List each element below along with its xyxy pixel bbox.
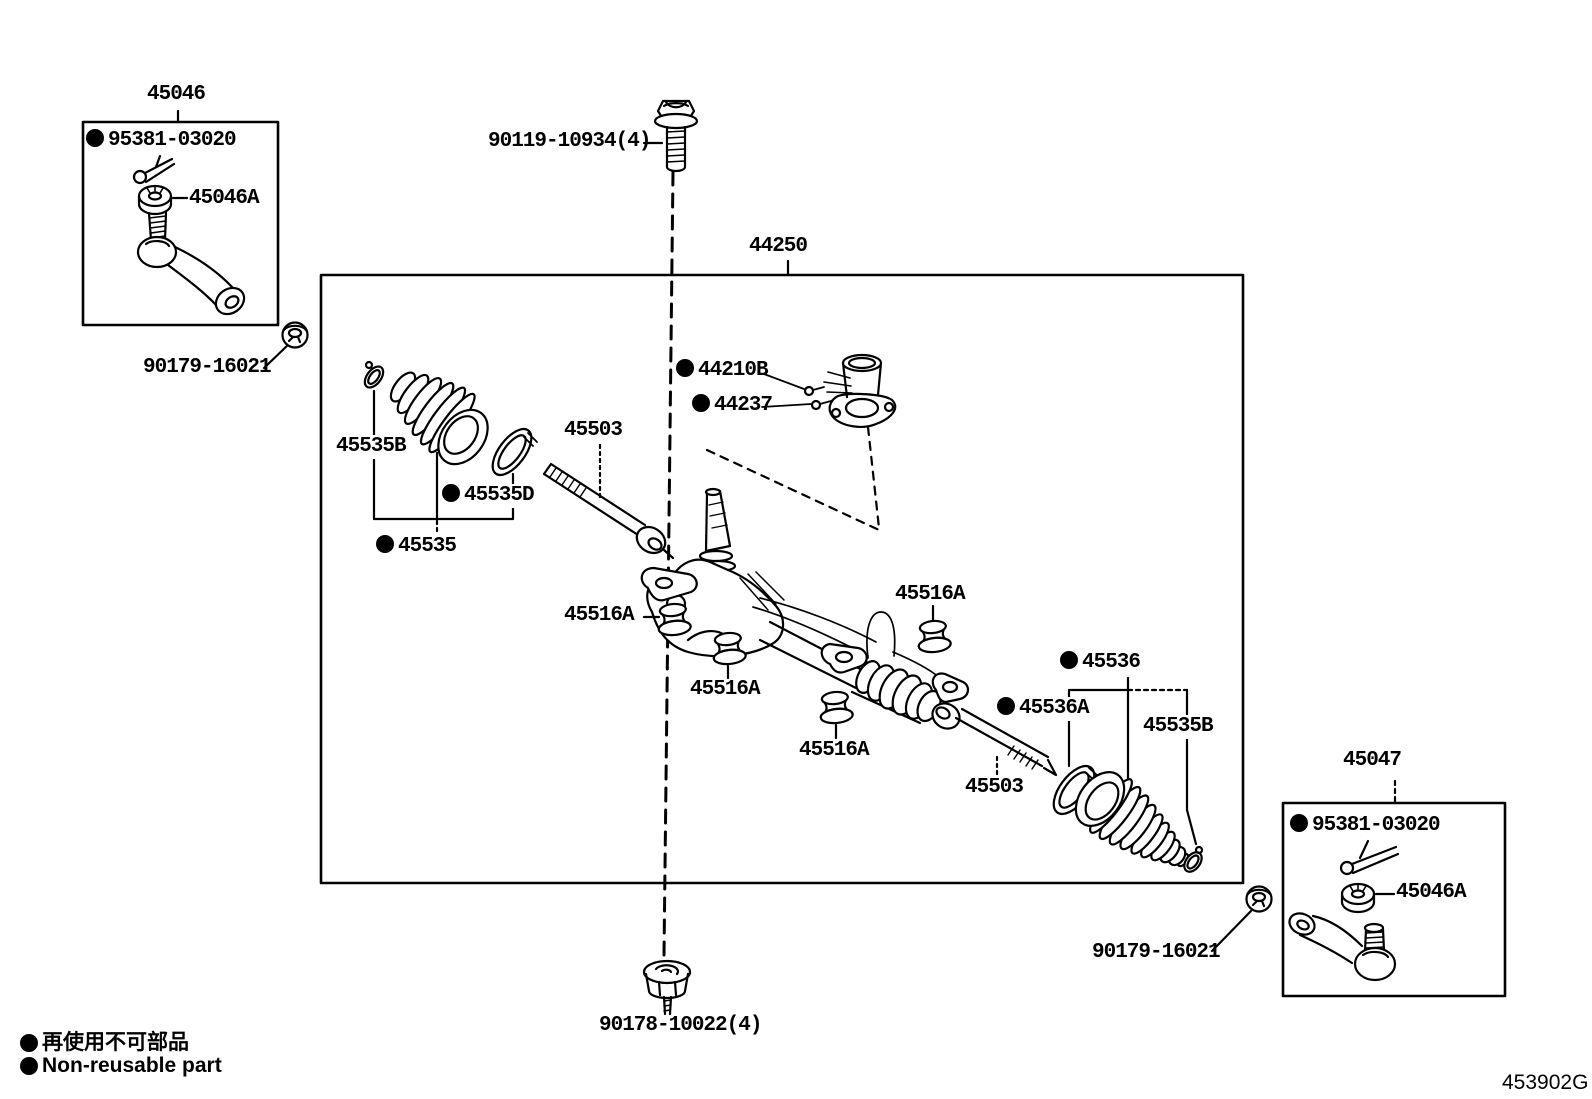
part-label-44237[interactable]: 44237 xyxy=(692,394,772,418)
legend-en: Non-reusable part xyxy=(20,1054,222,1078)
part-label-45536[interactable]: 45536 xyxy=(1060,651,1140,675)
dust-cover-drawing xyxy=(762,355,895,427)
part-label-45535D[interactable]: 45535D xyxy=(441,484,535,508)
diagram-line-art xyxy=(0,0,1592,1099)
part-label-44250[interactable]: 44250 xyxy=(749,235,807,259)
non-reusable-marker-icon xyxy=(376,535,394,553)
part-label-45047[interactable]: 45047 xyxy=(1343,749,1401,773)
part-label-45516A-2[interactable]: 45516A xyxy=(690,678,760,702)
part-label-45516A-4[interactable]: 45516A xyxy=(895,583,965,607)
non-reusable-marker-icon xyxy=(20,1057,38,1075)
part-label-45046[interactable]: 45046 xyxy=(147,83,205,107)
part-label-44210B[interactable]: 44210B xyxy=(676,359,768,383)
part-label-45535[interactable]: 45535 xyxy=(376,535,456,559)
non-reusable-marker-icon xyxy=(997,697,1015,715)
part-label-45535B-left[interactable]: 45535B xyxy=(335,435,407,459)
non-reusable-marker-icon xyxy=(1060,651,1078,669)
legend-jp: 再使用不可部品 xyxy=(20,1026,189,1056)
figure-code: 453902G xyxy=(1502,1071,1588,1095)
part-label-45536A[interactable]: 45536A xyxy=(996,697,1090,721)
tie-rod-end-left-drawing xyxy=(134,156,249,319)
tie-rod-end-right-drawing xyxy=(1286,841,1398,980)
non-reusable-marker-icon xyxy=(20,1034,38,1052)
part-label-45046A-left[interactable]: 45046A xyxy=(189,187,259,211)
non-reusable-marker-icon xyxy=(86,129,104,147)
flange-nut-drawing xyxy=(644,961,690,1014)
lock-nut-right xyxy=(1212,887,1272,952)
part-label-90119[interactable]: 90119-10934(4) xyxy=(488,130,650,154)
flange-bolt-drawing xyxy=(644,101,697,171)
part-label-45503-left[interactable]: 45503 xyxy=(564,419,622,443)
non-reusable-marker-icon xyxy=(692,394,710,412)
part-label-45535B-right[interactable]: 45535B xyxy=(1142,715,1214,739)
part-label-95381-left[interactable]: 95381-03020 xyxy=(86,129,236,153)
part-label-45046A-right[interactable]: 45046A xyxy=(1396,881,1466,905)
part-label-90179-right[interactable]: 90179-16021 xyxy=(1092,941,1220,965)
non-reusable-marker-icon xyxy=(442,484,460,502)
non-reusable-marker-icon xyxy=(676,359,694,377)
part-label-90179-left[interactable]: 90179-16021 xyxy=(143,356,271,380)
part-label-45503-right[interactable]: 45503 xyxy=(965,776,1023,800)
part-label-95381-right[interactable]: 95381-03020 xyxy=(1290,814,1440,838)
non-reusable-marker-icon xyxy=(1290,814,1308,832)
parts-diagram-page: 45046 95381-03020 45046A 90179-16021 901… xyxy=(0,0,1592,1099)
part-label-90178[interactable]: 90178-10022(4) xyxy=(599,1014,761,1038)
part-label-45516A-1[interactable]: 45516A xyxy=(564,604,634,628)
part-label-45516A-3[interactable]: 45516A xyxy=(799,739,869,763)
left-inner-tie-rod-drawing xyxy=(544,445,673,558)
